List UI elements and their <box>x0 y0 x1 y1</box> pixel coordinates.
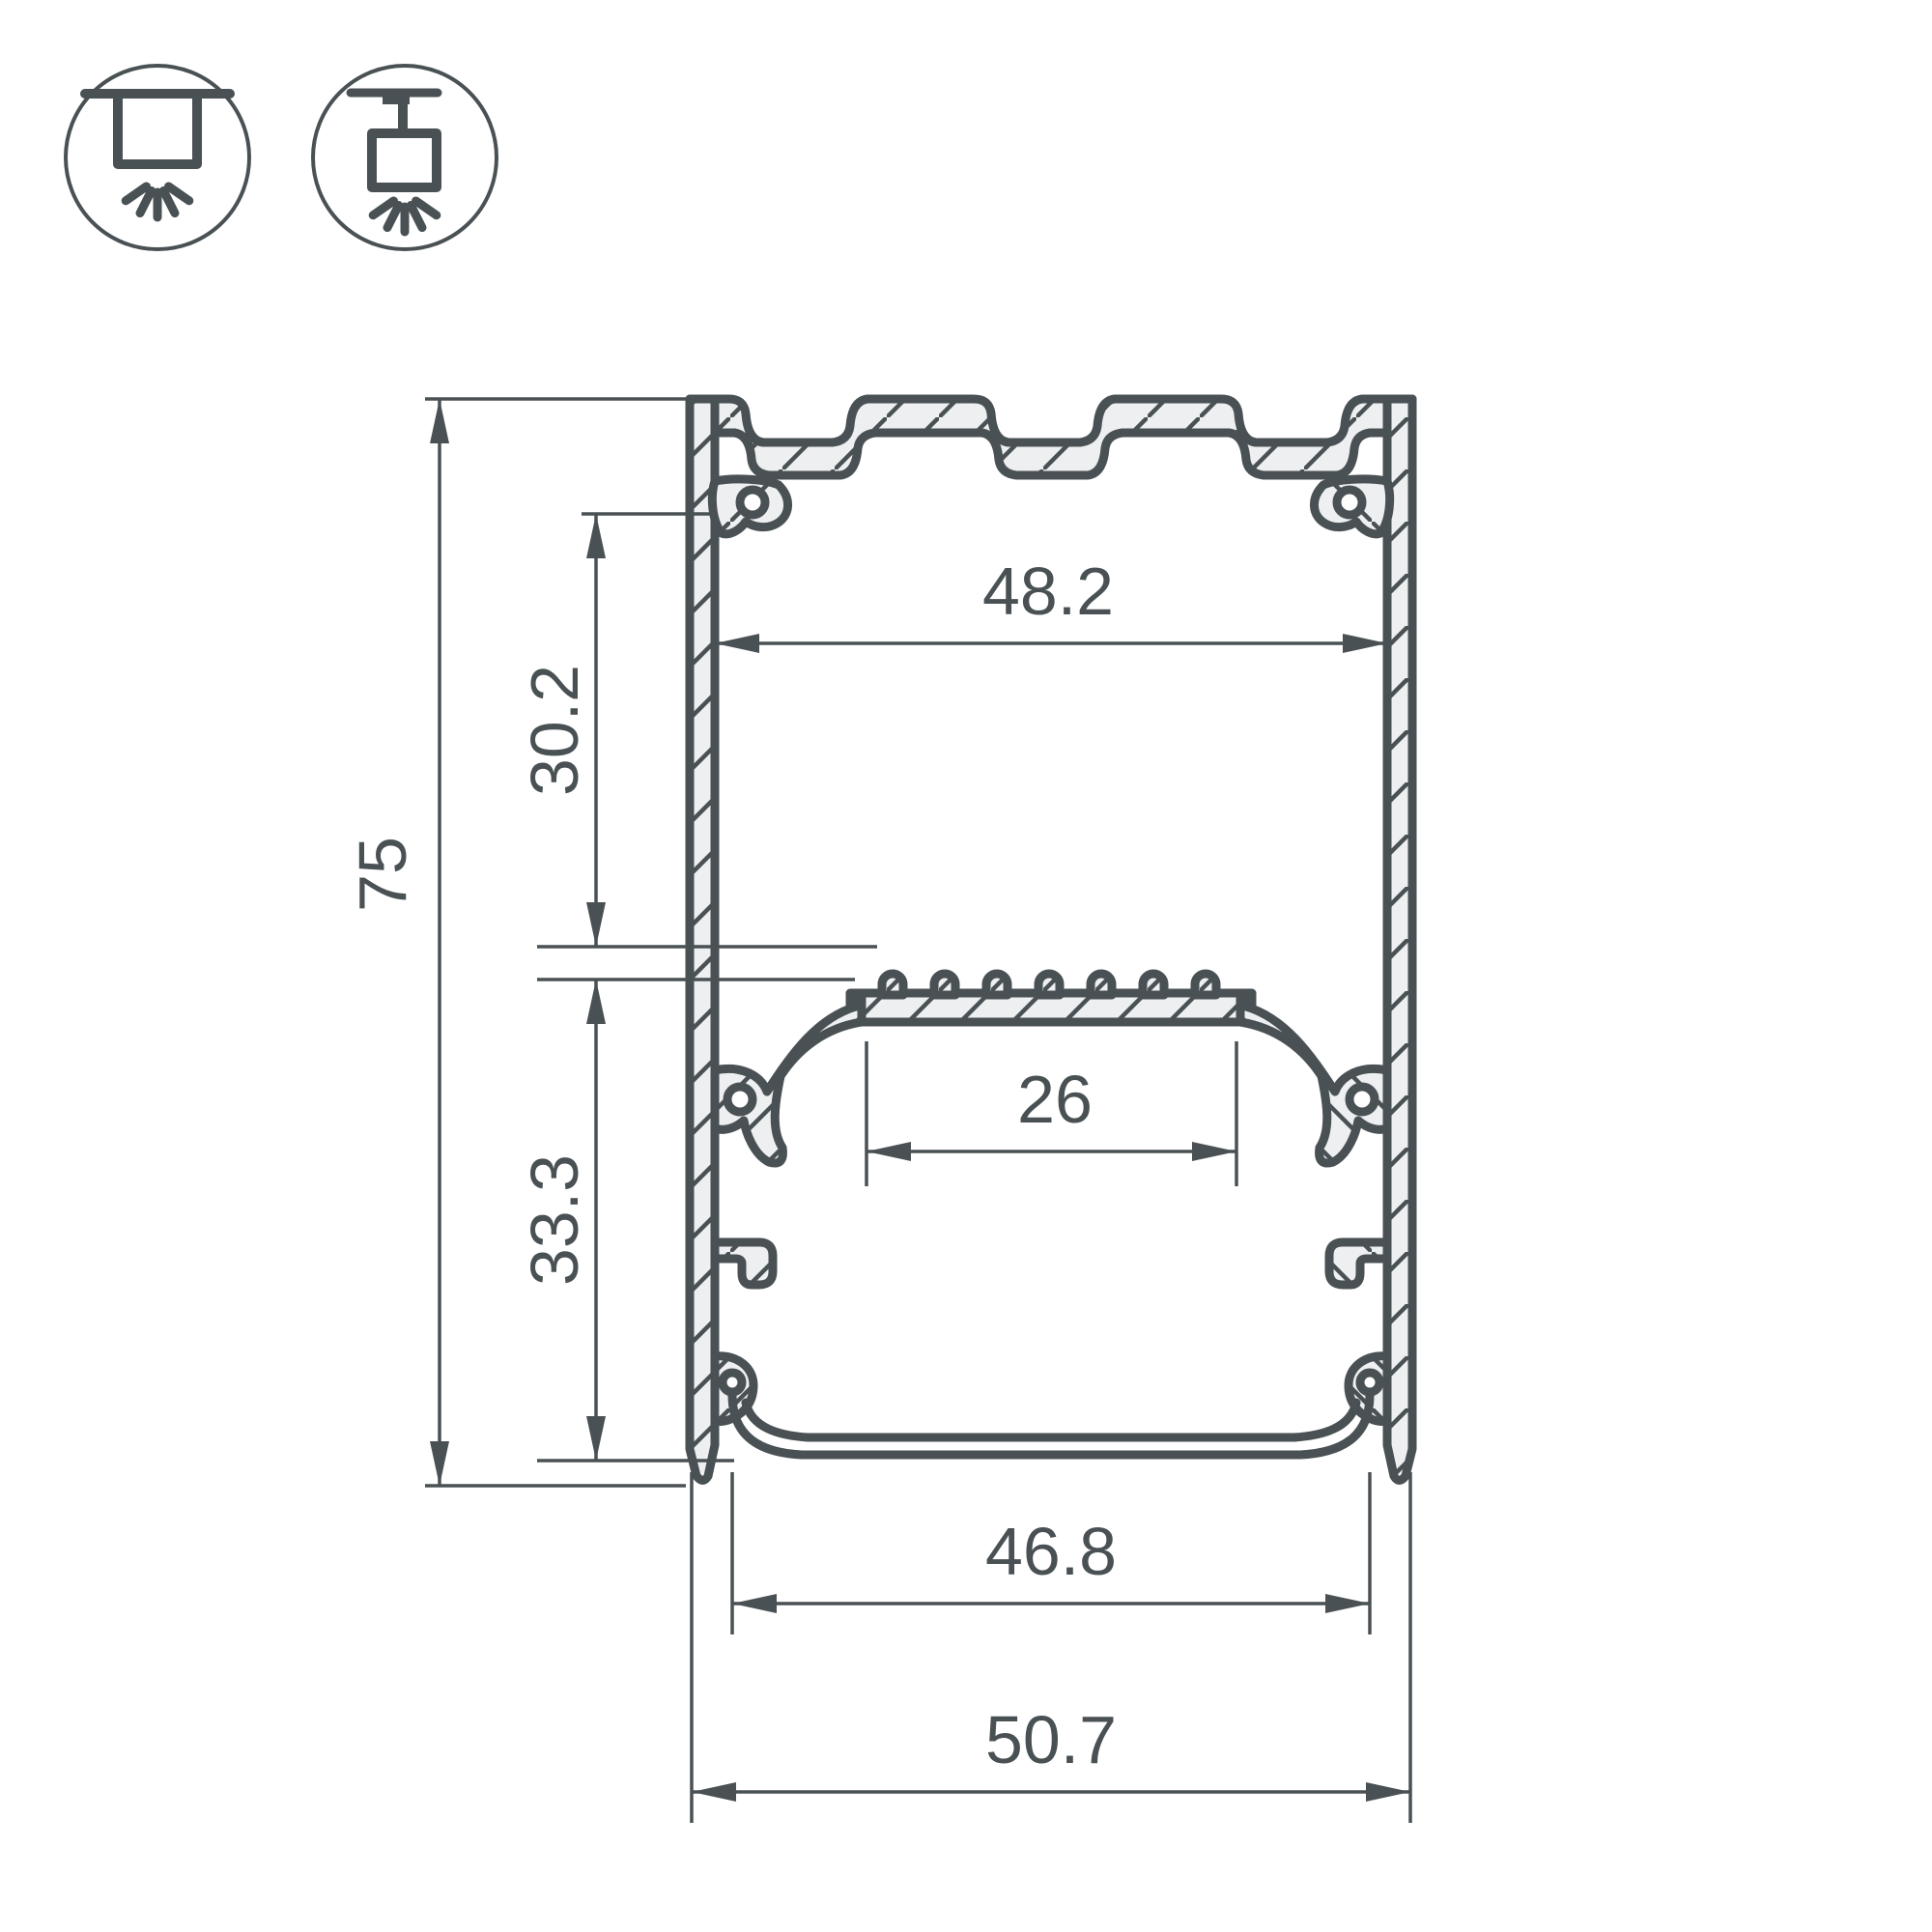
surface-mount-icon <box>66 66 249 249</box>
light-rays <box>126 186 189 217</box>
label-led-platform: 26 <box>1017 1062 1093 1137</box>
pendant-mount-icon <box>313 66 497 249</box>
dimension-annotations <box>425 399 1410 1823</box>
dim-inner-width <box>715 634 1387 653</box>
diffuser <box>732 1395 1370 1455</box>
label-overall-width: 50.7 <box>985 1702 1117 1777</box>
top-mounting-plate <box>690 399 1412 475</box>
hook-right <box>1329 1242 1387 1285</box>
wing-right <box>1240 993 1387 1163</box>
screw-boss-top-left <box>712 479 787 534</box>
screw-boss-top-right <box>1314 479 1389 534</box>
wall-left <box>690 399 715 1481</box>
wall-right <box>1387 399 1412 1481</box>
label-top-section: 30.2 <box>517 665 592 796</box>
label-inner-width: 48.2 <box>982 554 1114 629</box>
label-bottom-opening: 46.8 <box>985 1514 1117 1589</box>
profile-drawing-page: 75 30.2 33.3 48.2 26 46.8 50.7 <box>0 0 1932 1932</box>
led-platform-ribs <box>882 974 1216 995</box>
label-bottom-section: 33.3 <box>517 1154 592 1286</box>
dim-overall-height <box>425 399 686 1486</box>
technical-drawing: 75 30.2 33.3 48.2 26 46.8 50.7 <box>0 0 1932 1932</box>
light-rays <box>373 201 437 232</box>
hook-left <box>715 1242 773 1285</box>
wing-left <box>715 993 862 1163</box>
label-overall-height: 75 <box>345 837 420 912</box>
